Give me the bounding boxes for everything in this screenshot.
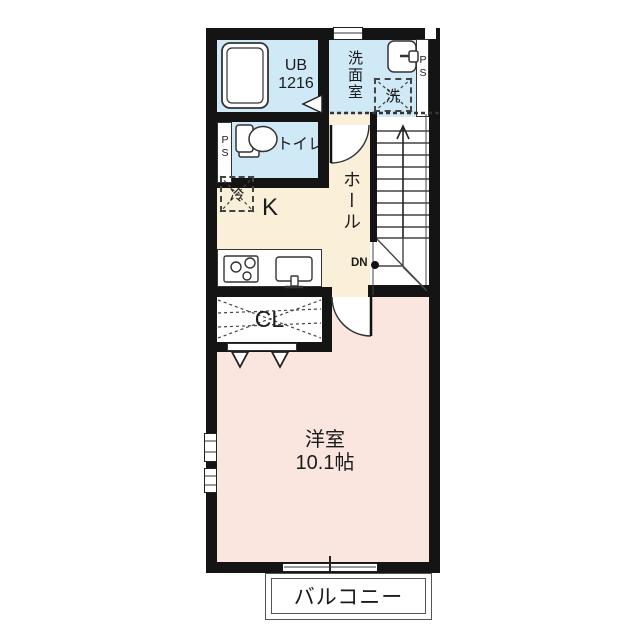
unit-bath-label: UB 1216 [268,57,324,94]
wall-right [429,28,440,573]
wall-above-closet [206,287,332,297]
unit-bath-name: UB [268,57,324,75]
western-room-name: 洋室 [238,429,412,452]
wall-under-ub [206,112,329,122]
hall-label: ホール [338,170,364,233]
closet-label: CL [217,297,322,342]
window-left-2 [204,468,217,493]
folding-door-panel [227,343,297,351]
floorplan-canvas: UB 1216 洗面室 洗 PS PS トイレ 冷 K ホール DN CL 洋室… [0,0,640,640]
stairs-dn-dot [371,261,379,269]
western-room-size: 10.1帖 [238,452,412,475]
toilet-label: トイレ [277,132,324,154]
washer-label: 洗 [374,78,412,112]
fridge-label: 冷 [220,176,254,212]
wall-ub-washroom [318,28,329,188]
wall-stairs-left [370,112,377,242]
pipe-space-left-label: PS [219,134,231,160]
stairs-dn-label: DN [351,257,368,269]
kitchen-counter [217,249,322,287]
unit-bath-size: 1216 [268,75,324,93]
window-top [333,27,363,40]
washroom-label: 洗面室 [344,50,365,101]
window-left-1 [204,433,217,462]
wall-under-stairs [368,285,440,297]
stairs [373,114,429,295]
pipe-space-right-label: PS [417,54,429,80]
window-balcony-tick [329,556,331,572]
balcony-label: バルコニー [265,573,432,618]
kitchen-label: K [262,194,278,222]
wall-notch [425,28,436,39]
stairs-up-arrow-icon [397,126,409,238]
western-room-label: 洋室 10.1帖 [238,429,412,475]
